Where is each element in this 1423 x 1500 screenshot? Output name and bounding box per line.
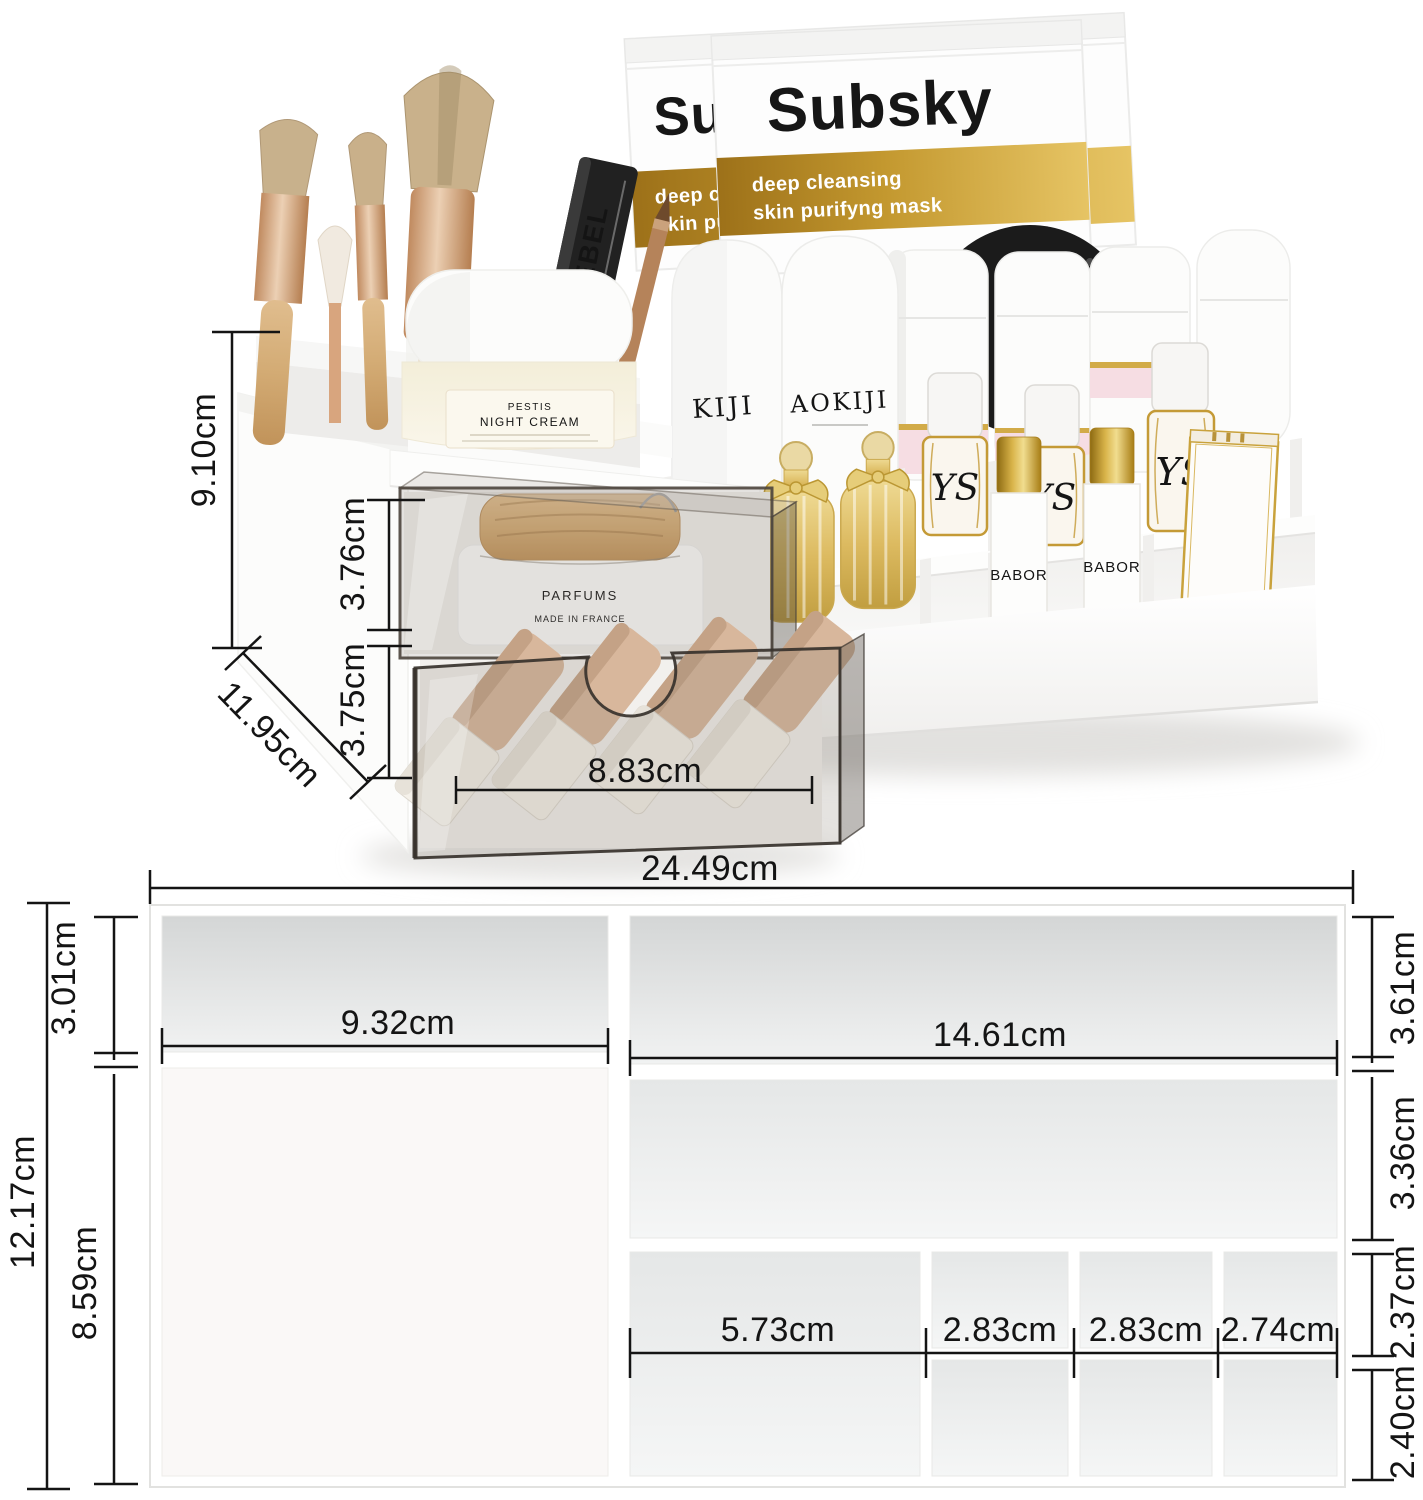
cell-col1 xyxy=(630,1252,920,1476)
illustration-canvas: Subsky deep cleansing skin purifyng mask… xyxy=(0,0,1423,1500)
cell-grid xyxy=(630,1252,1337,1476)
cream-brand: PESTIS xyxy=(508,402,553,413)
dim-drawer-width-label: 8.83cm xyxy=(588,752,703,790)
dim-topleft-width-label: 9.32cm xyxy=(341,1004,456,1042)
dim-topright-width-label: 14.61cm xyxy=(933,1016,1067,1054)
dim-topleft-height-label: 3.01cm xyxy=(45,921,83,1036)
brand-text-front: Subsky xyxy=(765,67,994,146)
dim-col4-width-label: 2.74cm xyxy=(1221,1311,1336,1349)
babor2-label: BABOR xyxy=(1083,559,1141,576)
night-cream-jar: PESTIS NIGHT CREAM xyxy=(402,270,636,450)
dim-bottomleft-height-label: 8.59cm xyxy=(66,1226,104,1341)
dim-total-height-label: 9.10cm xyxy=(185,393,223,508)
cell-col3-row2 xyxy=(1080,1360,1212,1476)
cell-col4-row2 xyxy=(1224,1360,1337,1476)
dim-middleright-height-label: 3.36cm xyxy=(1384,1096,1422,1211)
tower-side-panel xyxy=(238,393,408,852)
dim-drawer1-height-label: 3.76cm xyxy=(334,497,372,612)
dim-topright-height-label: 3.61cm xyxy=(1384,931,1422,1046)
dim-overall-height-label: 12.17cm xyxy=(4,1135,42,1269)
dim-col2-width-label: 2.83cm xyxy=(943,1311,1058,1349)
dim-cellrow2-height-label: 2.40cm xyxy=(1384,1365,1422,1480)
dim-cellrow1-height-label: 2.37cm xyxy=(1384,1245,1422,1360)
dim-col3-width-label: 2.83cm xyxy=(1089,1311,1204,1349)
compartment-middle-right xyxy=(630,1080,1337,1238)
bottle-right-label: AOKIJI xyxy=(789,385,890,418)
bottle-left-label: KIJI xyxy=(691,391,755,425)
dimension-diagram: 24.49cm 12.17cm 3.01cm 8.59cm 9.32cm 14.… xyxy=(4,849,1422,1489)
vial1-monogram: YS xyxy=(931,468,979,509)
babor1-label: BABOR xyxy=(990,567,1048,584)
product-photo: Subsky deep cleansing skin purifyng mask… xyxy=(185,13,1360,880)
cell-col2-row2 xyxy=(932,1360,1068,1476)
dim-overall-width-label: 24.49cm xyxy=(641,849,779,888)
dim-drawer2-height-label: 3.75cm xyxy=(334,643,372,758)
product-listing-image: Subsky deep cleansing skin purifyng mask… xyxy=(0,0,1423,1500)
dim-col1-width-label: 5.73cm xyxy=(721,1311,836,1349)
cream-name: NIGHT CREAM xyxy=(480,415,580,429)
compartment-bottom-left xyxy=(162,1068,608,1476)
monogram-vial-1: YS xyxy=(923,373,987,535)
